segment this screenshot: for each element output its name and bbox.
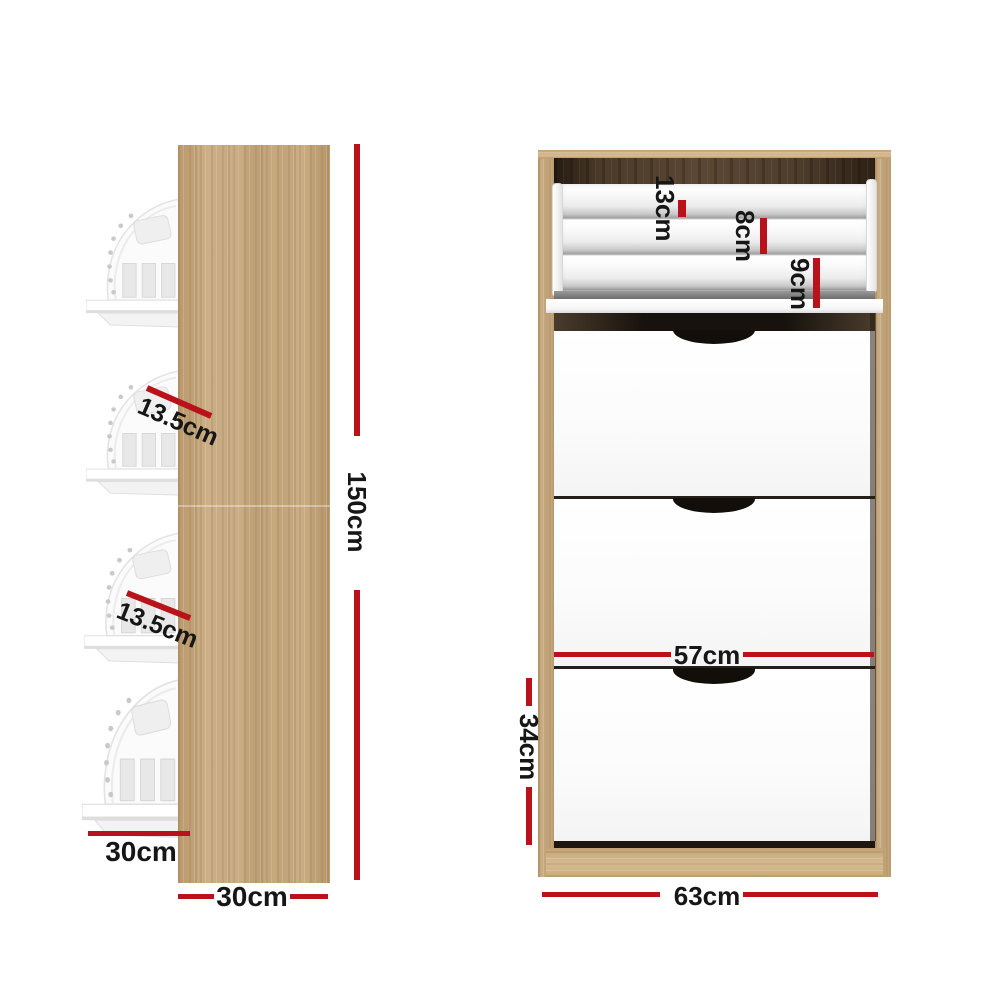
dim-line-overall-width-left (542, 892, 660, 897)
shoe-rack-side-tier-1 (86, 196, 180, 330)
product-dimension-image: 13.5cm 13.5cm 30cm 30cm 150cm (0, 0, 1000, 1000)
top-shelf-board (546, 299, 883, 313)
drawer-gap-band (554, 313, 875, 331)
dim-line-drawer-height-lower (526, 787, 532, 845)
dim-line-drawer-height-upper (526, 678, 532, 706)
drawer-1 (554, 331, 875, 496)
dim-label-drawer-height: 34cm (516, 705, 542, 789)
dim-label-height: 150cm (344, 467, 370, 557)
dim-line-height-upper (354, 144, 360, 436)
dim-tick-tier-2 (760, 218, 767, 254)
tray-bottom-lip (554, 291, 875, 299)
dim-label-shelf-depth: 30cm (104, 838, 178, 866)
kick-plate (546, 848, 883, 877)
dim-label-inner-width: 57cm (672, 642, 742, 668)
dim-line-overall-width-right (743, 892, 878, 897)
drawer-right-shadow (870, 313, 876, 841)
dim-line-panel-depth-right (290, 894, 328, 899)
dim-line-height-lower (354, 590, 360, 880)
drawer-3 (554, 669, 875, 841)
dim-label-tier-1: 13cm (652, 175, 678, 239)
open-shoe-tray (556, 184, 873, 291)
dim-line-inner-width-left (554, 652, 671, 657)
dim-label-overall-width: 63cm (672, 883, 742, 909)
dim-label-tier-2: 8cm (732, 208, 758, 264)
tray-hinge-right (866, 179, 877, 293)
dim-line-panel-depth-left (178, 894, 214, 899)
wood-side-panel (178, 145, 330, 883)
dim-label-tier-3: 9cm (787, 256, 813, 312)
side-panel-seam (178, 505, 330, 507)
dim-line-inner-width-right (743, 652, 874, 657)
dim-label-panel-depth: 30cm (214, 883, 290, 911)
shoe-rack-side-tier-4 (82, 676, 180, 841)
base-shadow (554, 841, 875, 848)
shoe-rack-side-tier-2 (86, 368, 180, 498)
tray-hinge-left (552, 183, 563, 297)
cabinet-right-frame (875, 150, 891, 877)
